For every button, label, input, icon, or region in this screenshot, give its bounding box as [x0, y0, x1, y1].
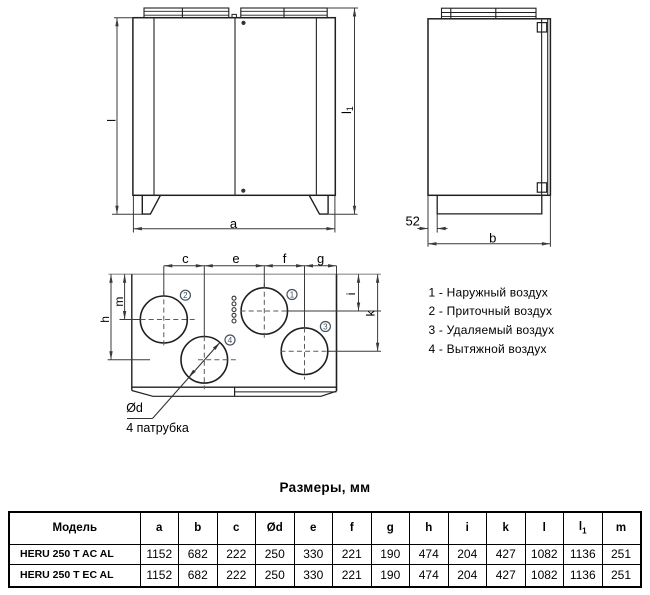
svg-text:4 патрубка: 4 патрубка — [126, 421, 189, 435]
svg-text:e: e — [232, 251, 239, 266]
svg-text:a: a — [230, 216, 238, 231]
svg-text:i: i — [344, 293, 358, 296]
svg-text:3 - Удаляемый воздух: 3 - Удаляемый воздух — [429, 323, 555, 337]
svg-text:f: f — [283, 251, 287, 266]
svg-text:l1: l1 — [339, 106, 355, 114]
svg-text:m: m — [112, 297, 126, 307]
svg-text:Ød: Ød — [126, 401, 143, 415]
svg-text:h: h — [98, 316, 112, 323]
svg-text:b: b — [489, 230, 496, 245]
svg-text:3: 3 — [323, 322, 328, 331]
svg-text:2: 2 — [183, 291, 188, 300]
svg-text:1 - Наружный воздух: 1 - Наружный воздух — [429, 285, 549, 299]
svg-text:l: l — [104, 119, 118, 122]
svg-text:52: 52 — [405, 214, 419, 229]
svg-text:k: k — [363, 309, 377, 316]
svg-text:2 - Приточный воздух: 2 - Приточный воздух — [429, 304, 553, 318]
svg-text:1: 1 — [290, 290, 295, 299]
svg-text:4: 4 — [228, 336, 233, 345]
svg-text:g: g — [317, 251, 324, 266]
svg-text:4 - Вытяжной воздух: 4 - Вытяжной воздух — [429, 342, 547, 356]
svg-text:c: c — [182, 251, 189, 266]
